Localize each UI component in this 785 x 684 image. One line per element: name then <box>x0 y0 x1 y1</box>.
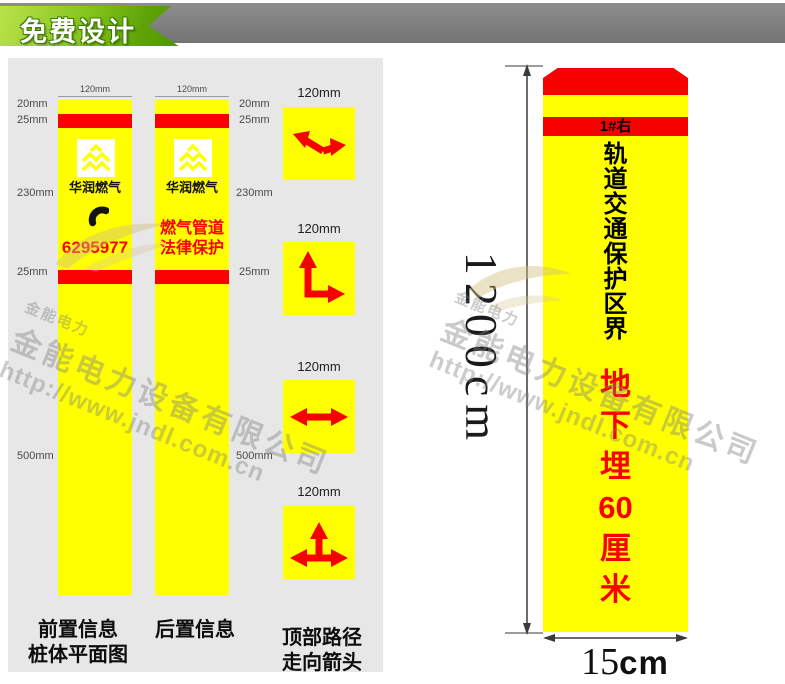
front-post-brand: 华润燃气 <box>58 177 132 196</box>
front-post-bottom-stripe <box>58 270 132 284</box>
front-post-top-stripe <box>58 114 132 128</box>
back-post-brand: 华润燃气 <box>155 177 229 196</box>
tile-width-label: 120mm <box>283 221 355 236</box>
corner-arrow-tile <box>283 242 355 315</box>
measurement-label: 25mm <box>17 114 48 126</box>
measurement-label: 230mm <box>17 187 54 199</box>
free-design-label: 免费设计 <box>20 10 170 49</box>
double-arrow-icon <box>283 380 355 453</box>
design-proof-image: 免费设计 120mm 华润燃气 6295977 120mm 华润燃气 燃气管 <box>0 0 785 684</box>
back-post-top-stripe <box>155 114 229 128</box>
pile-title-char: 交 <box>543 192 688 217</box>
pile-title-char: 护 <box>543 267 688 292</box>
tile-width-label: 120mm <box>283 359 355 374</box>
pile-subtitle-char: 地 <box>543 364 688 405</box>
double-arrow-tile <box>283 380 355 453</box>
front-post-width-label: 120mm <box>58 84 132 94</box>
tile-width-label: 120mm <box>283 484 355 499</box>
measurement-label: 500mm <box>236 450 273 462</box>
back-post-caption: 后置信息 <box>130 613 260 642</box>
phone-handset-icon <box>83 198 109 233</box>
measurement-label: 20mm <box>239 98 270 110</box>
back-post-warning-line2: 法律保护 <box>155 234 229 258</box>
front-post-phone-number: 6295977 <box>58 238 132 258</box>
width-dimension-label: 15cm <box>555 640 695 684</box>
pile-title-char: 通 <box>543 217 688 242</box>
gas-company-logo-icon <box>77 139 115 177</box>
pile-subtitle-char: 下 <box>543 405 688 446</box>
pile-title-char: 界 <box>543 317 688 342</box>
pile-subtitle-char: 厘 <box>543 528 688 569</box>
measurement-label: 20mm <box>17 98 48 110</box>
front-post-width-dimline <box>58 96 132 97</box>
back-post-width-label: 120mm <box>155 84 229 94</box>
pile-title-char: 道 <box>543 167 688 192</box>
height-dimension-label: 1200cm <box>462 240 508 460</box>
corner-arrow-icon <box>283 242 355 315</box>
pile-subtitle-char: 米 <box>543 569 688 610</box>
measurement-label: 25mm <box>239 114 270 126</box>
measurement-label: 500mm <box>17 450 54 462</box>
pile-title-vertical: 轨 道 交 通 保 护 区 界 <box>543 142 688 342</box>
pile-number-band: 1#右 <box>543 117 688 136</box>
width-unit: cm <box>619 644 669 681</box>
turn-back-arrow-icon <box>283 107 355 180</box>
pile-subtitle-vertical: 地 下 埋 60 厘 米 <box>543 364 688 610</box>
pile-title-char: 轨 <box>543 142 688 167</box>
pile-title-char: 区 <box>543 292 688 317</box>
width-value: 15 <box>581 641 619 683</box>
back-post-bottom-stripe <box>155 270 229 284</box>
back-post-width-dimline <box>155 96 229 97</box>
measurement-label: 25mm <box>17 266 48 278</box>
pile-subtitle-char: 埋 <box>543 446 688 487</box>
tee-arrow-icon <box>283 506 355 579</box>
pile-subtitle-char: 60 <box>543 487 688 528</box>
pile-red-cap <box>543 68 688 95</box>
tee-arrow-tile <box>283 506 355 579</box>
gas-company-logo-icon <box>174 139 212 177</box>
measurement-label: 25mm <box>239 266 270 278</box>
turn-back-arrow-tile <box>283 107 355 180</box>
front-post-caption-line2: 桩体平面图 <box>13 638 143 667</box>
pile-yellow-band <box>543 95 688 117</box>
measurement-label: 230mm <box>236 187 273 199</box>
pile-number-tag: 1#右 <box>543 117 688 136</box>
pile-title-char: 保 <box>543 242 688 267</box>
tiles-caption-line2: 走向箭头 <box>257 646 387 675</box>
tile-width-label: 120mm <box>283 85 355 100</box>
